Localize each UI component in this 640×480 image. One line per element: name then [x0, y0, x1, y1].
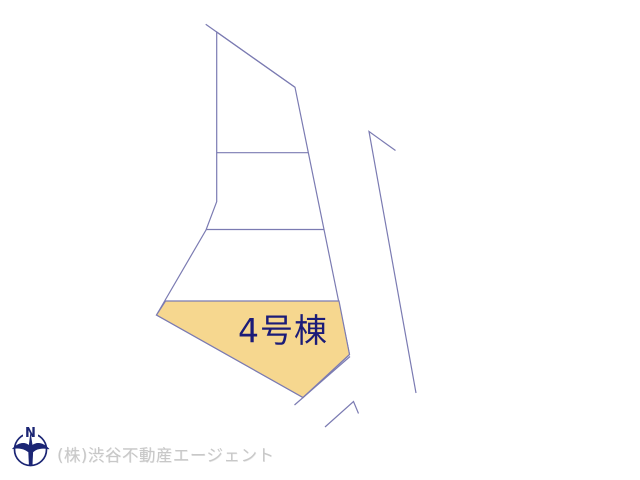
plot-map-drawing	[0, 0, 640, 480]
right-road-line	[369, 132, 416, 394]
compass-icon: N	[11, 424, 51, 469]
company-watermark: (株)渋谷不動産エージェント	[57, 446, 275, 466]
plot-map-canvas: 4号棟 N (株)渋谷不動産エージェント	[0, 0, 640, 480]
building4-label: 4号棟	[238, 313, 328, 349]
corner-mark-line	[325, 402, 359, 428]
